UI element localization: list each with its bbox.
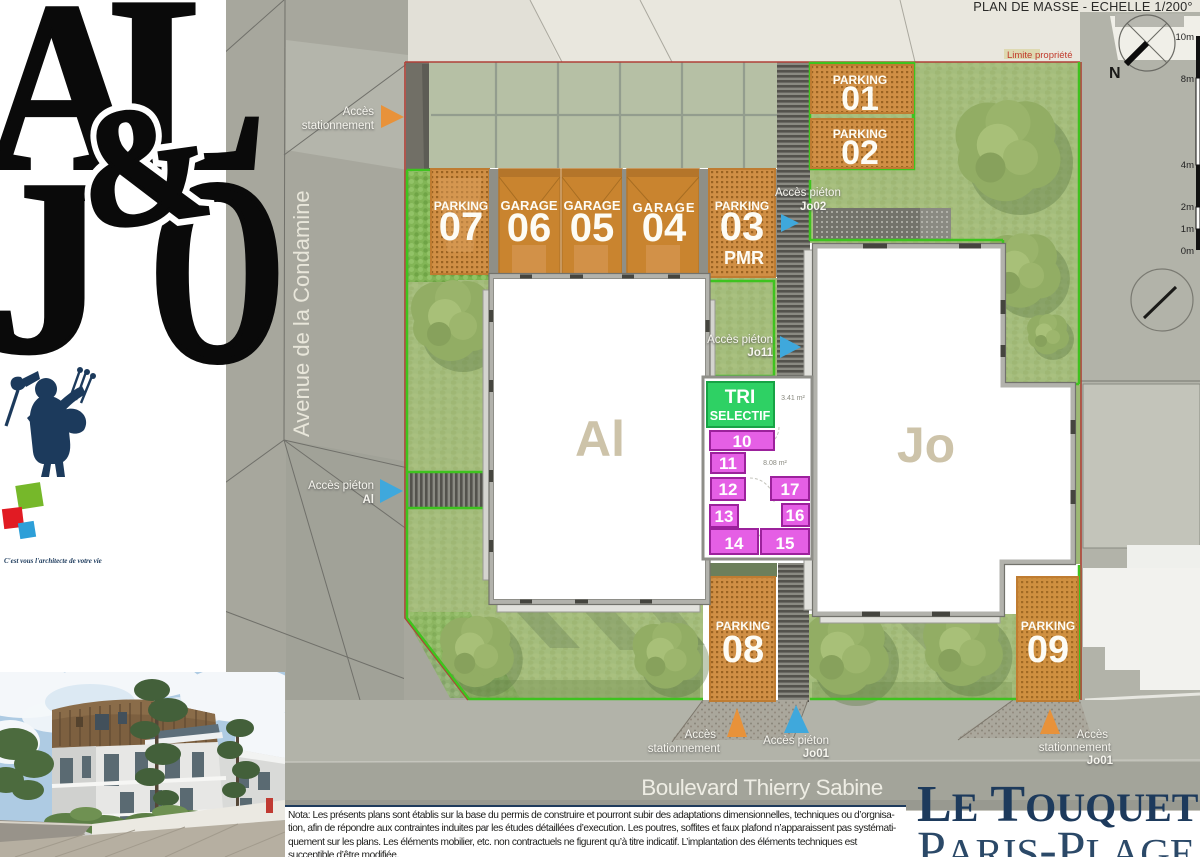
svg-text:10: 10	[733, 432, 752, 451]
svg-text:TRI: TRI	[725, 387, 756, 408]
svg-text:13: 13	[715, 507, 734, 526]
svg-text:12: 12	[719, 480, 738, 499]
svg-text:Jo01: Jo01	[1087, 755, 1114, 767]
svg-text:PLAN DE MASSE - ECHELLE 1/200°: PLAN DE MASSE - ECHELLE 1/200°	[973, 0, 1193, 14]
svg-text:2m: 2m	[1181, 202, 1194, 213]
svg-text:Accès piéton: Accès piéton	[763, 735, 829, 747]
svg-text:4m: 4m	[1181, 160, 1194, 171]
svg-text:Accès piéton: Accès piéton	[308, 480, 374, 492]
svg-text:8m: 8m	[1181, 74, 1194, 85]
svg-text:05: 05	[570, 206, 615, 250]
svg-text:02: 02	[841, 134, 879, 172]
svg-text:Al: Al	[575, 411, 625, 467]
svg-text:Jo02: Jo02	[800, 201, 826, 213]
svg-text:0m: 0m	[1181, 246, 1194, 257]
svg-text:Accès piéton: Accès piéton	[775, 187, 841, 199]
svg-text:17: 17	[781, 480, 800, 499]
svg-text:Accès: Accès	[1077, 729, 1109, 741]
svg-text:SELECTIF: SELECTIF	[710, 409, 771, 423]
svg-text:&: &	[67, 64, 220, 266]
svg-text:16: 16	[786, 506, 805, 525]
svg-text:stationnement: stationnement	[1039, 742, 1112, 754]
svg-text:stationnement: stationnement	[302, 120, 375, 132]
svg-text:Accès: Accès	[685, 729, 717, 741]
svg-text:03: 03	[720, 205, 765, 249]
svg-text:Jo: Jo	[897, 417, 955, 473]
svg-text:Accès: Accès	[343, 106, 375, 118]
svg-text:01: 01	[841, 80, 879, 118]
svg-text:09: 09	[1027, 629, 1069, 671]
svg-text:15: 15	[776, 534, 795, 553]
svg-text:8.08 m²: 8.08 m²	[763, 460, 787, 467]
svg-text:1m: 1m	[1181, 224, 1194, 235]
svg-text:Boulevard Thierry Sabine: Boulevard Thierry Sabine	[641, 775, 882, 800]
svg-text:11: 11	[719, 454, 737, 473]
svg-text:08: 08	[722, 629, 764, 671]
svg-text:Accès piéton: Accès piéton	[707, 334, 773, 346]
svg-text:Limite propriété: Limite propriété	[1007, 50, 1072, 61]
svg-text:Jo11: Jo11	[747, 347, 773, 359]
svg-text:3.41 m²: 3.41 m²	[781, 395, 805, 402]
svg-text:stationnement: stationnement	[648, 743, 721, 755]
svg-text:14: 14	[725, 534, 744, 553]
svg-text:N: N	[1109, 65, 1121, 82]
svg-text:Jo01: Jo01	[803, 748, 830, 760]
svg-text:04: 04	[642, 206, 687, 250]
svg-text:06: 06	[507, 206, 552, 250]
svg-text:10m: 10m	[1176, 32, 1195, 43]
svg-text:PMR: PMR	[724, 248, 764, 268]
svg-text:07: 07	[439, 205, 484, 249]
svg-text:Al: Al	[363, 494, 375, 506]
